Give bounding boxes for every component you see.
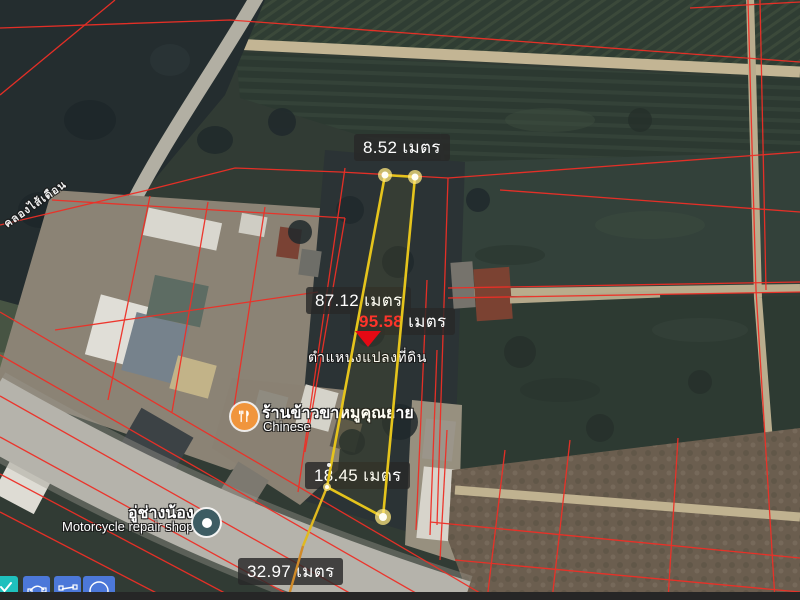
map-viewport[interactable]: 8.52 เมตร 87.12 เมตร 95.58 เมตร 18.45 เม… <box>0 0 800 600</box>
restaurant-icon <box>238 410 251 423</box>
plot-location-label: ตำแหน่งแปลงที่ดิน <box>308 347 427 369</box>
plot-location-marker <box>355 331 381 347</box>
measurement-unit: เมตร <box>402 138 440 157</box>
measurement-value-highlight: 95.58 <box>359 312 403 331</box>
measurement-unit: เมตร <box>296 562 334 581</box>
measurement-value: 18.45 <box>314 466 358 485</box>
measurement-label-bottom: 18.45 เมตร <box>305 462 410 489</box>
measurement-unit: เมตร <box>408 312 446 331</box>
measurement-label-top: 8.52 เมตร <box>354 134 450 161</box>
measurement-value: 8.52 <box>363 138 397 157</box>
measurement-label-road: 32.97 เมตร <box>238 558 343 585</box>
poi-dot-icon <box>202 518 212 528</box>
repair-shop-pin[interactable] <box>193 509 220 536</box>
restaurant-category: Chinese <box>263 419 311 434</box>
measurement-value: 32.97 <box>247 562 291 581</box>
bottom-bar <box>0 592 800 600</box>
repair-shop-category: Motorcycle repair shop <box>62 519 194 534</box>
restaurant-pin[interactable] <box>231 403 258 430</box>
measurement-unit: เมตร <box>363 466 401 485</box>
